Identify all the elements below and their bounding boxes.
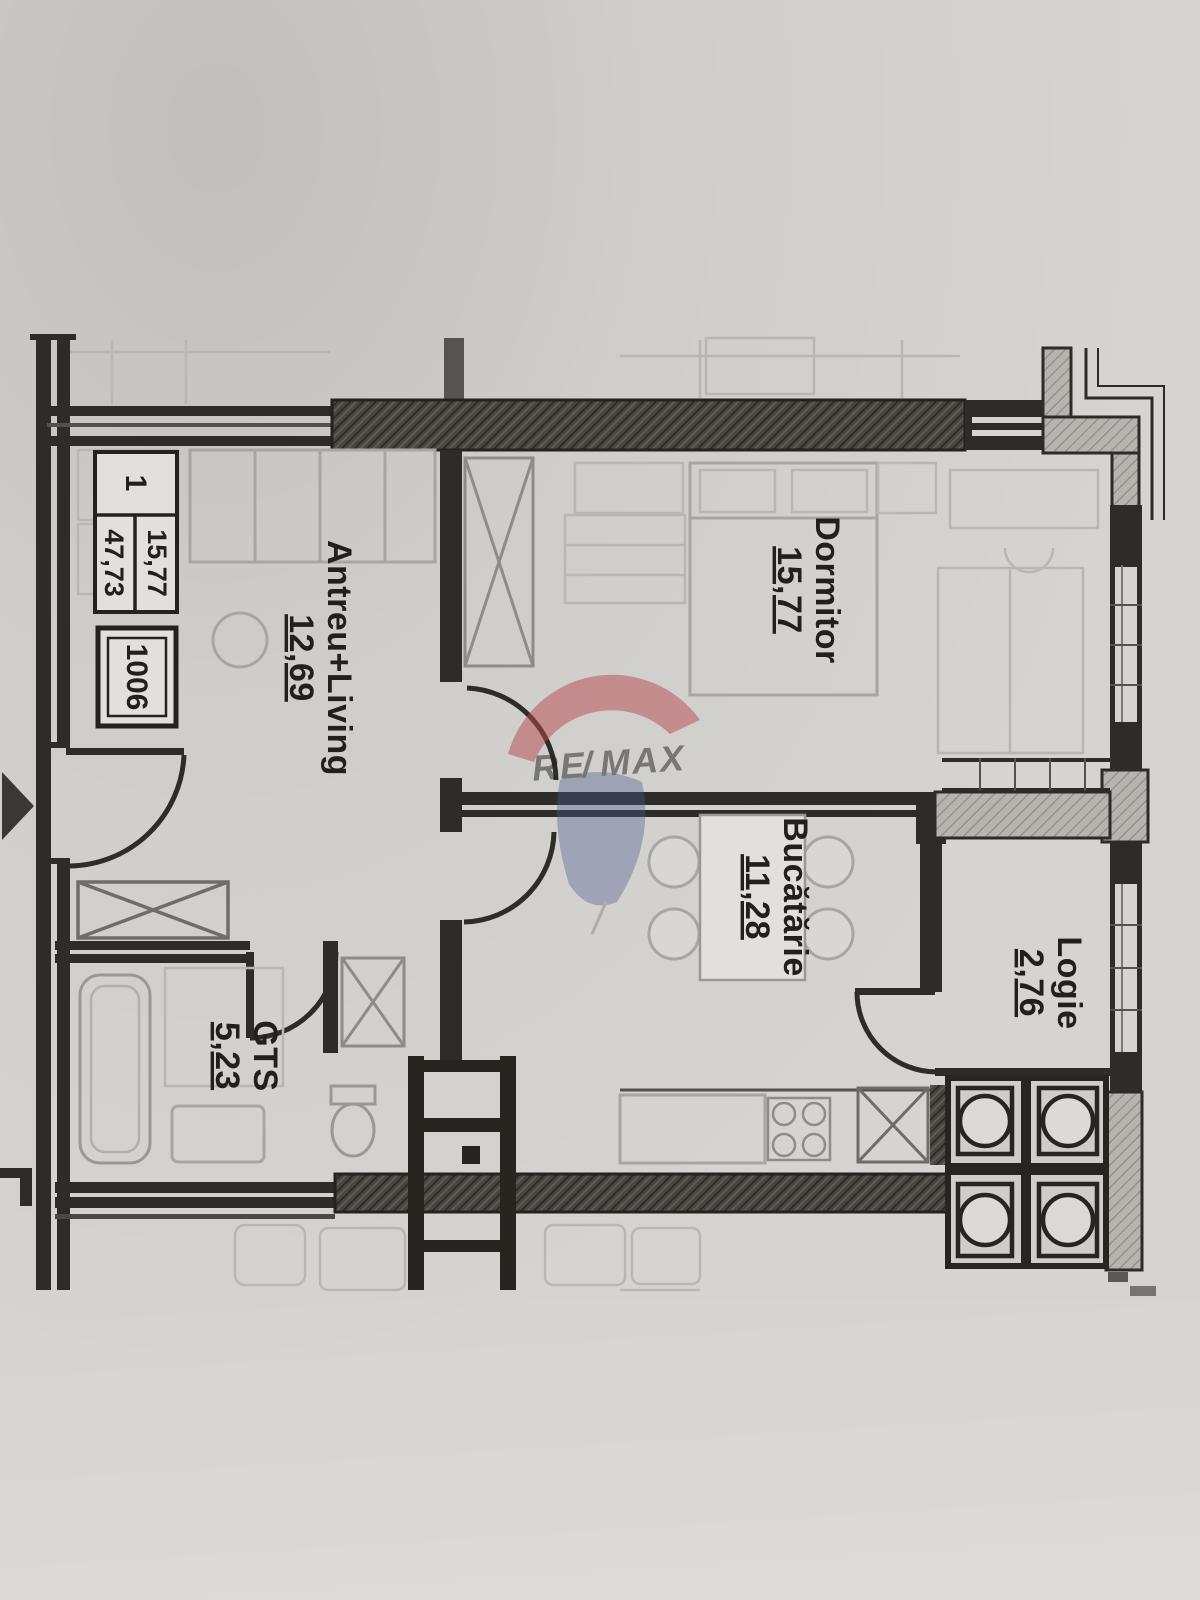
paper-bottom-sheen: [0, 1300, 1200, 1600]
apartment-number-box: 1006: [98, 628, 176, 726]
wall-dormitor-bucatarie: [440, 792, 940, 817]
window-top-left: [47, 406, 332, 446]
left-wall-outer: [36, 338, 51, 1290]
room-name-bucatarie: Bucătărie: [776, 817, 814, 976]
room-name-logie: Logie: [1050, 936, 1088, 1029]
rooms-count: 1: [119, 475, 152, 492]
unit-info-box: 1 15,77 47,73 1006: [95, 452, 177, 726]
room-area-gts: 5,23: [208, 1022, 246, 1090]
room-area-antreu: 12,69: [282, 614, 320, 702]
area-living: 15,77: [142, 529, 172, 597]
label-logie: Logie 2,76: [1012, 936, 1088, 1029]
area-total: 47,73: [99, 529, 129, 597]
bottom-hatched-wall: [335, 1174, 948, 1212]
floorplan-drawing: RE / MAX 1 15,77 47,73 1006 Antreu+Liv: [0, 0, 1200, 1600]
vent-block: [948, 1078, 1106, 1266]
left-wall-inner-lower: [57, 862, 70, 1290]
floorplan-photo: RE / MAX 1 15,77 47,73 1006 Antreu+Liv: [0, 0, 1200, 1600]
room-name-antreu: Antreu+Living: [320, 540, 358, 776]
top-wall-end-piece: [965, 400, 1045, 450]
left-wall-inner-upper: [57, 338, 70, 746]
room-name-gts: GTS: [246, 1020, 284, 1091]
right-wall-shaft-strip: [1106, 1092, 1142, 1270]
watermark-max: MAX: [599, 737, 688, 784]
room-area-logie: 2,76: [1012, 949, 1050, 1017]
room-name-dormitor: Dormitor: [808, 516, 846, 664]
room-area-dormitor: 15,77: [770, 546, 808, 634]
logie-bottom-edge: [935, 1068, 1110, 1076]
top-hatched-wall: [332, 400, 965, 450]
wall-antreu-dormitor: [440, 450, 462, 682]
room-area-bucatarie: 11,28: [738, 854, 776, 940]
apartment-number: 1006: [120, 644, 153, 711]
label-gts: GTS 5,23: [208, 1020, 284, 1091]
watermark-re: RE: [531, 744, 588, 789]
